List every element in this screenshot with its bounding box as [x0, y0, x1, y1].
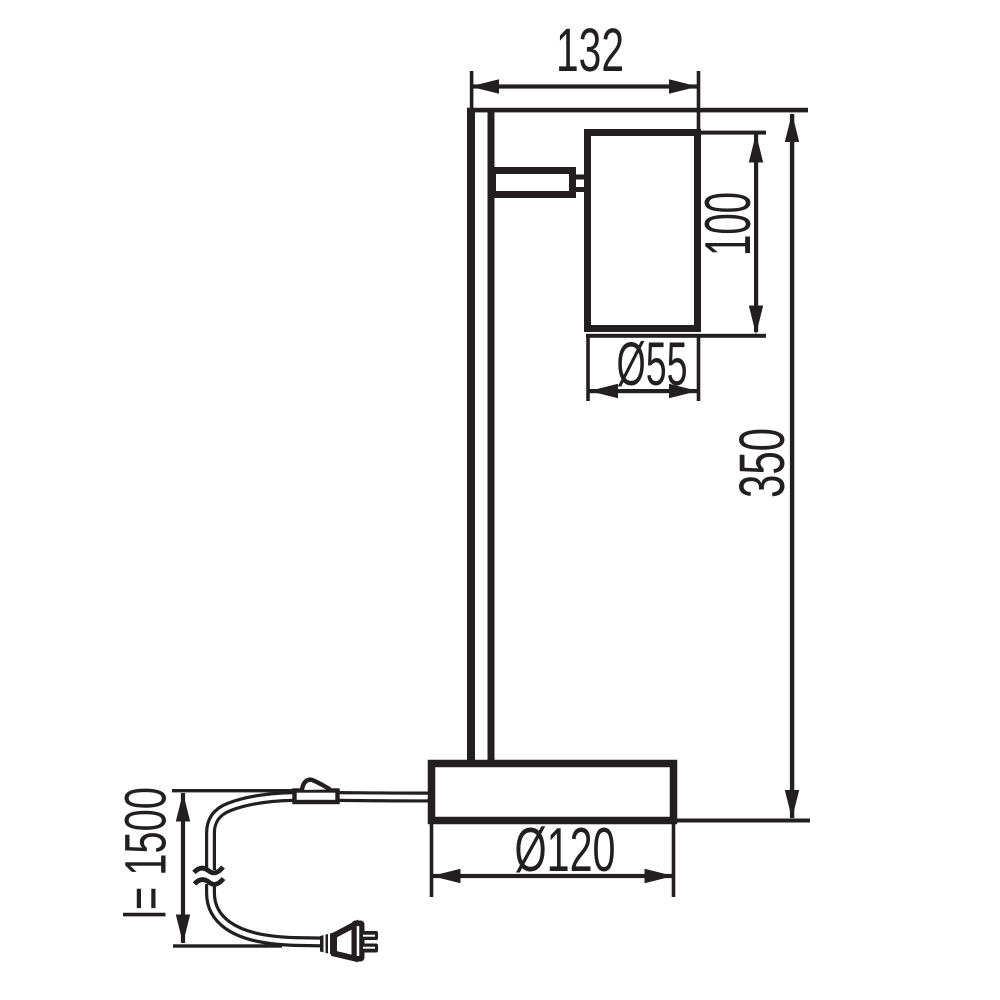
svg-text:l= 1500: l= 1500 — [114, 787, 179, 919]
svg-text:Ø55: Ø55 — [617, 330, 688, 398]
svg-text:350: 350 — [726, 428, 798, 498]
svg-text:100: 100 — [691, 192, 764, 256]
svg-text:Ø120: Ø120 — [515, 816, 616, 885]
svg-text:132: 132 — [556, 16, 624, 84]
